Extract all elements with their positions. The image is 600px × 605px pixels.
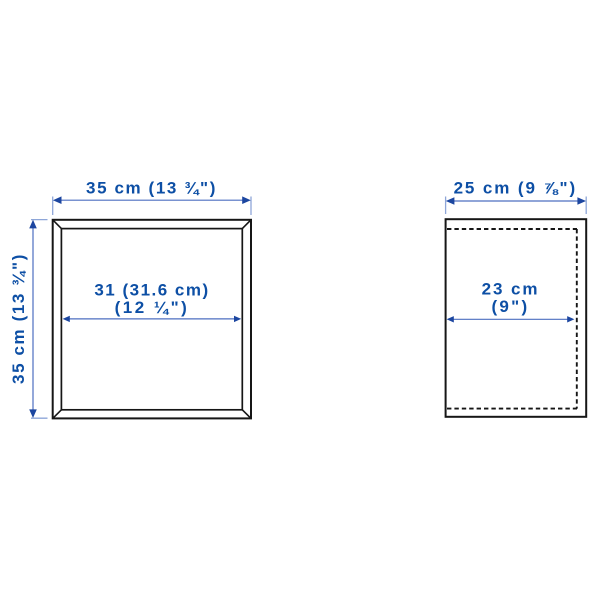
- svg-text:25 cm (9 ⅞"): 25 cm (9 ⅞"): [454, 179, 577, 198]
- svg-text:(12 ¼"): (12 ¼"): [115, 298, 190, 317]
- svg-text:35 cm (13 ¾"): 35 cm (13 ¾"): [9, 253, 28, 384]
- svg-text:31 (31.6 cm): 31 (31.6 cm): [94, 281, 209, 300]
- svg-text:(9"): (9"): [491, 297, 529, 316]
- svg-text:23 cm: 23 cm: [482, 280, 540, 299]
- svg-text:35 cm (13 ¾"): 35 cm (13 ¾"): [86, 179, 217, 198]
